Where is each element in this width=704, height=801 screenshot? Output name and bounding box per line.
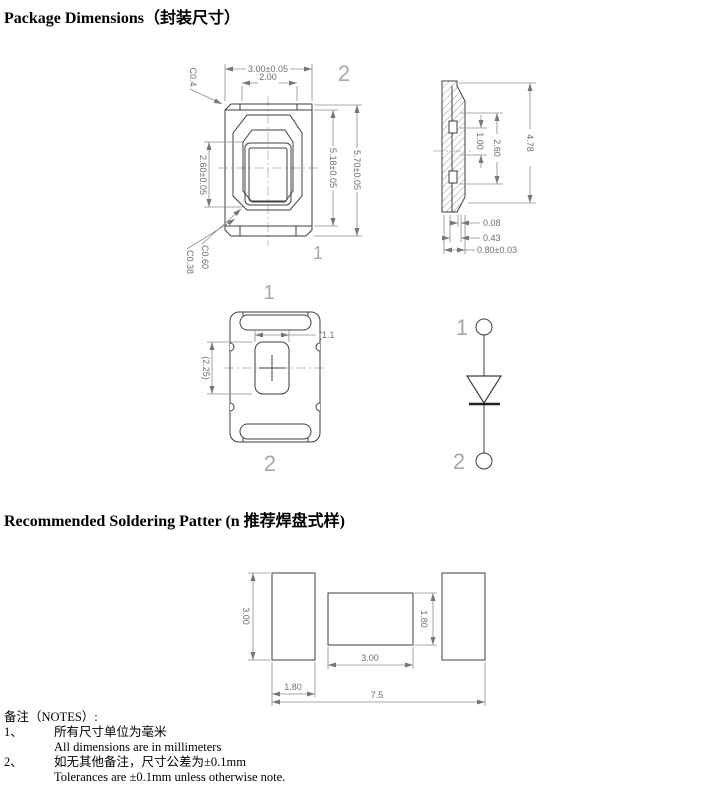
bottom-view: (1.1 (2.25) 1 2 <box>201 282 335 476</box>
dim-slot-height: (2.25) <box>201 356 211 380</box>
cross-section-body <box>442 81 465 212</box>
cavity-notch-lower <box>449 171 457 183</box>
left-pad <box>272 573 315 660</box>
page-title: Package Dimensions（封装尺寸） <box>4 4 240 28</box>
dim-cavity-height: 2.60±0.05 <box>198 155 208 195</box>
dim-thickness: 0.80±0.03 <box>477 245 517 255</box>
package-dimensions-figure: 3.00±0.05 2.00 C0.4 2.60±0.05 5.18±0.05 <box>180 50 630 490</box>
soldering-pattern-figure: 3.00 1.80 3.00 1.80 7.5 <box>238 553 498 711</box>
bottom-pin1-marker: 1 <box>263 282 274 304</box>
schematic-pin1-label: 1 <box>456 315 468 340</box>
note-zh: 所有尺寸单位为毫米 <box>54 725 221 740</box>
dim-window-width: 2.00 <box>259 72 277 82</box>
note-item: 1、 所有尺寸单位为毫米 All dimensions are in milli… <box>4 725 285 755</box>
edge-notch <box>230 343 234 351</box>
cavity-notch-upper <box>449 121 457 133</box>
bottom-body <box>230 312 320 442</box>
right-pad <box>442 573 485 660</box>
diode-schematic: 1 2 <box>453 315 501 474</box>
center-keepout <box>328 593 413 645</box>
top-view: 3.00±0.05 2.00 C0.4 2.60±0.05 5.18±0.05 <box>185 61 362 274</box>
schematic-pin2-label: 2 <box>453 449 465 474</box>
pin2-marker: 2 <box>338 61 350 86</box>
note-zh: 如无其他备注，尺寸公差为±0.1mm <box>54 755 285 770</box>
note-number: 2、 <box>4 755 54 785</box>
soldering-pattern-title: Recommended Soldering Patter (n 推荐焊盘式样) <box>4 507 345 531</box>
bottom-pin2-marker: 2 <box>264 451 276 476</box>
cathode-pad-slot <box>240 315 311 330</box>
dim-inner-height: 5.18±0.05 <box>328 148 338 188</box>
dim-lead: 0.43 <box>483 233 501 243</box>
dim-gap-height: 1.80 <box>419 610 429 628</box>
edge-notch <box>316 403 320 411</box>
note-item: 2、 如无其他备注，尺寸公差为±0.1mm Tolerances are ±0.… <box>4 755 285 785</box>
note-en: Tolerances are ±0.1mm unless otherwise n… <box>54 770 285 785</box>
dim-standoff: 0.08 <box>483 218 501 228</box>
anode-pad-slot <box>240 424 311 439</box>
dim-pad-height: 3.00 <box>241 607 251 625</box>
dim-cavity: 2.60 <box>492 139 502 157</box>
pin1-marker: 1 <box>313 243 323 263</box>
dim-gap-width: 3.00 <box>361 653 379 663</box>
notes-heading: 备注（NOTES）: <box>4 710 285 725</box>
pin1-terminal <box>476 319 492 335</box>
dim-total-width: 7.5 <box>371 690 384 700</box>
edge-notch <box>316 343 320 351</box>
note-en: All dimensions are in millimeters <box>54 740 221 755</box>
diode-triangle <box>467 376 501 403</box>
note-number: 1、 <box>4 725 54 755</box>
chamfer-c038-label: C0.38 <box>185 250 195 274</box>
dim-height: 4.78 <box>525 134 535 152</box>
dim-slot-width: (1.1 <box>319 330 335 340</box>
dim-pad-width: 1.80 <box>284 682 302 692</box>
chamfer-c060-label: C0.60 <box>200 245 210 269</box>
notes-block: 备注（NOTES）: 1、 所有尺寸单位为毫米 All dimensions a… <box>4 710 285 785</box>
pin2-terminal <box>476 453 492 469</box>
chamfer-c04-label: C0.4 <box>188 67 198 86</box>
edge-notch <box>230 403 234 411</box>
dim-step: 1.00 <box>475 132 485 150</box>
datasheet-page: Package Dimensions（封装尺寸） <box>0 0 704 801</box>
side-view: 1.00 2.60 4.78 0.08 0.43 <box>433 81 536 255</box>
dim-overall-height: 5.70±0.05 <box>352 150 362 190</box>
package-outline <box>225 104 312 236</box>
